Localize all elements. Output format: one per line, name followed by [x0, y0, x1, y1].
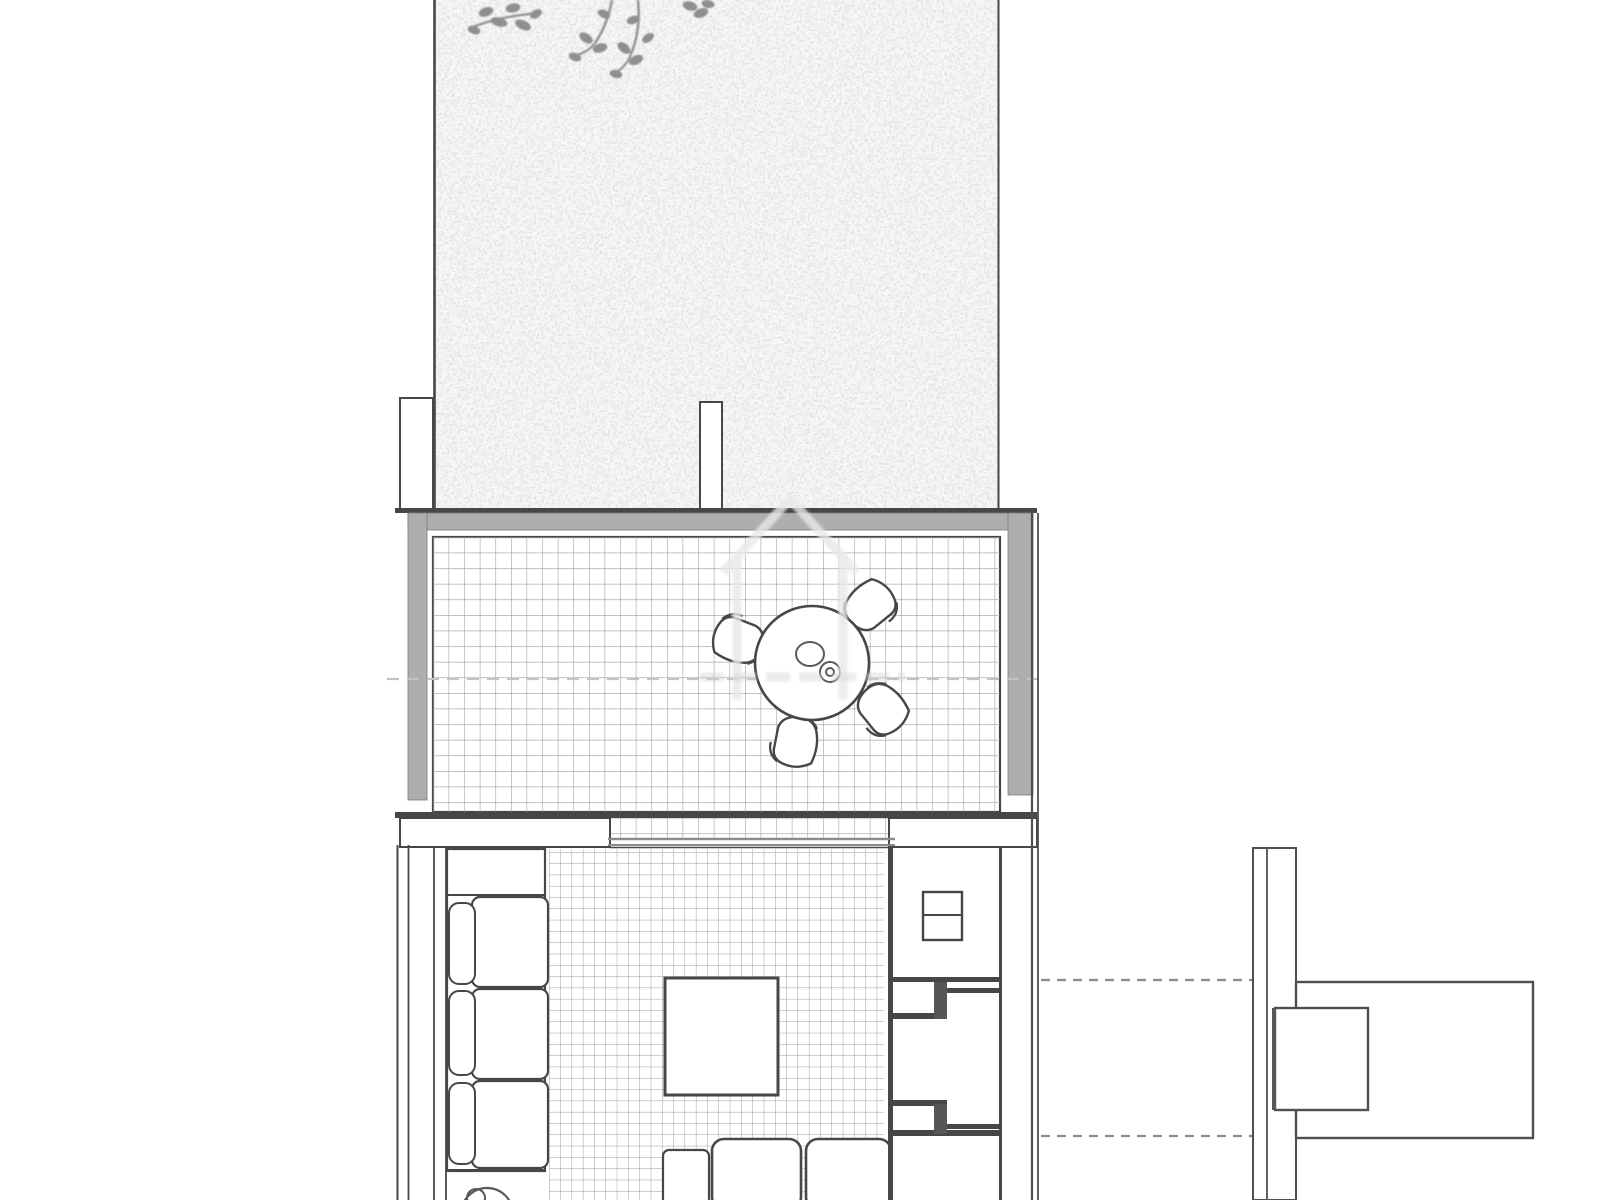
sofa-back-cushion — [449, 991, 475, 1075]
terrace-parapet-top — [408, 513, 1033, 530]
floor-sofa-side — [663, 1150, 709, 1200]
floor-sofa-cushion — [712, 1139, 801, 1200]
wall-segment-right — [889, 818, 1037, 847]
annex-structure — [1041, 848, 1533, 1200]
coffee-table — [665, 978, 778, 1095]
planter — [461, 1188, 513, 1200]
floor-plan-canvas — [0, 0, 1600, 1200]
door-jamb-lower — [893, 1100, 1000, 1136]
door-jamb-upper-stub — [934, 982, 947, 1019]
door-jamb-lower-stub — [934, 1104, 947, 1134]
door-opening-tile-grid — [610, 818, 889, 839]
sofa-seat-cushion — [472, 989, 548, 1079]
sofa-left — [447, 849, 548, 1171]
sofa-seat-cushion — [472, 1081, 548, 1168]
garden-area — [400, 0, 999, 510]
living-room-area — [398, 845, 892, 1200]
garden-gate-pillar-left — [400, 398, 433, 510]
partition-wall — [888, 847, 893, 1200]
wall-segment-left — [400, 818, 610, 847]
sofa-seat-cushion — [472, 897, 548, 987]
terrace-living-wall-band — [395, 812, 1037, 848]
terrace-area — [387, 508, 1040, 812]
terrace-top-wall-line — [395, 508, 1037, 513]
door-jamb-upper — [893, 977, 1000, 1019]
floor-sofa-cushion — [806, 1139, 891, 1200]
terrace-parapet-right — [1008, 513, 1033, 795]
floor-plan-drawing — [0, 0, 1600, 1200]
wall-cabinet — [923, 892, 962, 940]
sofa-back-cushion — [449, 903, 475, 984]
terrace-parapet-left — [408, 513, 427, 800]
garden-gate-pillar-right — [700, 402, 722, 510]
sofa-back-cushion — [449, 1083, 475, 1164]
hallway-inner-wall-line — [999, 847, 1002, 1200]
annex-pier — [1275, 1008, 1368, 1110]
